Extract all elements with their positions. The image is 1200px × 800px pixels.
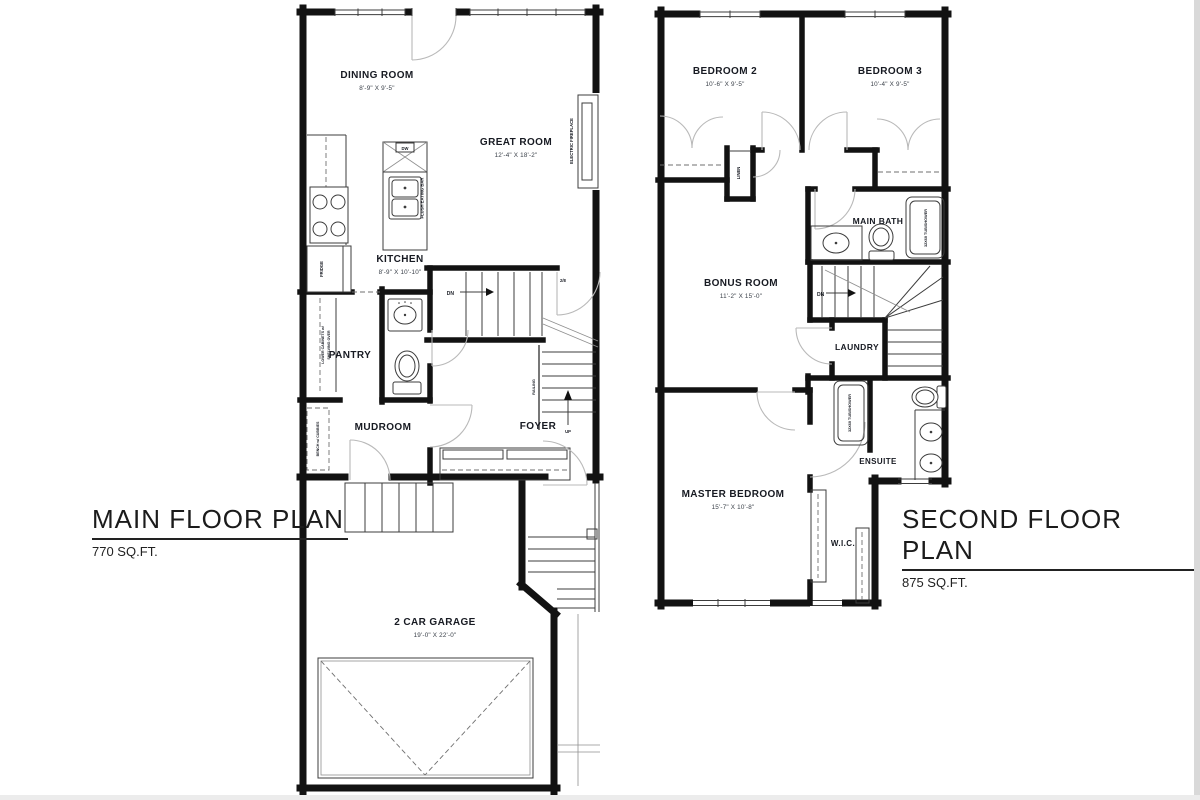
room-label-main-bath: MAIN BATH: [853, 216, 904, 226]
page-edge-bottom: [0, 795, 1200, 800]
room-dims-bedroom2: 10'-6" X 9'-5": [705, 81, 744, 88]
room-label-foyer: FOYER: [520, 421, 557, 432]
bedroom2-door: [762, 112, 800, 150]
bedroom3-door: [809, 112, 847, 150]
master-windows: [693, 598, 842, 609]
bedroom3-window: [845, 9, 905, 20]
room-dims-bonus: 11'-2" X 15'-0": [720, 293, 762, 300]
porch-steps: [528, 483, 599, 612]
room-label-bedroom3: BEDROOM 3: [858, 66, 922, 77]
room-label-bedroom2: BEDROOM 2: [693, 66, 757, 77]
second-floor-title-block: SECOND FLOOR PLAN 875 SQ.FT.: [902, 504, 1200, 590]
range-stove: [310, 187, 348, 243]
room-dims-kitchen: 8'-9" X 10'-10": [379, 269, 422, 276]
electric-fireplace: ELECTRIC FIREPLACE: [569, 93, 600, 190]
main-floor-area: 770 SQ.FT.: [92, 544, 348, 559]
lower-cabinets-label-1: LOWER CABINETS w/: [321, 326, 325, 364]
pantry-cabinets: LOWER CABINETS w/ SHELVING OVER: [320, 298, 336, 392]
main-floor-interior-walls: [300, 268, 557, 483]
second-floor-title: SECOND FLOOR PLAN: [902, 504, 1200, 571]
rear-entry-door: [412, 7, 456, 61]
room-label-mudroom: MUDROOM: [355, 422, 412, 433]
bedroom3-closet: [877, 119, 942, 172]
room-dims-dining: 8'-9" X 9'-5": [359, 85, 394, 92]
room-label-dining: DINING ROOM: [340, 70, 413, 81]
main-bath-tub-label: 32X60 TUB/SHOWER: [924, 209, 928, 247]
stairs-down-label: DN: [447, 291, 455, 297]
mudroom-bench: BENCH w/ CUBBIES: [307, 408, 329, 470]
room-label-pantry: PANTRY: [329, 350, 371, 361]
bench-label: BENCH w/ CUBBIES: [316, 421, 320, 456]
page-edge-right: [1194, 0, 1200, 800]
main-floor-plan-drawing: ELECTRIC FIREPLACE FRIDGE DW: [290, 0, 610, 800]
room-label-master: MASTER BEDROOM: [682, 489, 785, 500]
garage-entry-door: [350, 440, 390, 480]
bedroom2-closet: [660, 116, 724, 165]
railing-label: RAILING: [532, 379, 536, 395]
fridge-label: FRIDGE: [319, 261, 324, 277]
side-walk-lines: [558, 614, 600, 786]
ensuite-tub-label: 32X60 TUB/SHOWER: [848, 394, 852, 432]
room-dims-bedroom3: 10'-4" X 9'-5": [870, 81, 909, 88]
stairs-down-label-2f: DN: [817, 292, 825, 298]
room-label-ensuite: ENSUITE: [859, 457, 897, 466]
linen-label: LINEN: [736, 167, 741, 180]
kitchen-island: DW FLUSH EATING BAR: [383, 142, 427, 250]
room-label-wic: W.I.C.: [831, 539, 855, 548]
flush-eating-bar-label: FLUSH EATING BAR: [420, 178, 425, 219]
room-label-garage: 2 CAR GARAGE: [394, 617, 475, 628]
bedroom2-window: [700, 9, 760, 20]
main-floor-title: MAIN FLOOR PLAN: [92, 504, 348, 540]
laundry-door: [796, 328, 832, 364]
room-label-bonus: BONUS ROOM: [704, 278, 778, 289]
garage-door: [318, 658, 533, 778]
mudroom-foyer-door: [430, 405, 472, 447]
door-size-label: 2/8: [560, 278, 566, 283]
dining-window: [335, 7, 405, 18]
second-floor-area: 875 SQ.FT.: [902, 575, 1200, 590]
room-dims-master: 15'-7" X 10'-8": [712, 504, 755, 511]
room-label-great: GREAT ROOM: [480, 137, 552, 148]
stairs-up-label: UP: [565, 429, 571, 434]
floor-plan-sheet: ELECTRIC FIREPLACE FRIDGE DW: [0, 0, 1200, 800]
electric-fireplace-label: ELECTRIC FIREPLACE: [569, 118, 574, 164]
great-room-window: [470, 7, 585, 18]
room-label-laundry: LAUNDRY: [835, 342, 879, 352]
room-dims-garage: 19'-0" X 22'-0": [414, 632, 457, 639]
room-label-kitchen: KITCHEN: [376, 254, 423, 265]
room-dims-great: 12'-4" X 18'-2": [495, 152, 538, 159]
basement-stairs: DN: [447, 272, 542, 336]
master-door: [757, 392, 795, 430]
dishwasher-label: DW: [402, 146, 409, 151]
main-floor-title-block: MAIN FLOOR PLAN 770 SQ.FT.: [92, 504, 348, 559]
fridge: FRIDGE: [307, 246, 351, 292]
garage-steps: [345, 483, 453, 532]
